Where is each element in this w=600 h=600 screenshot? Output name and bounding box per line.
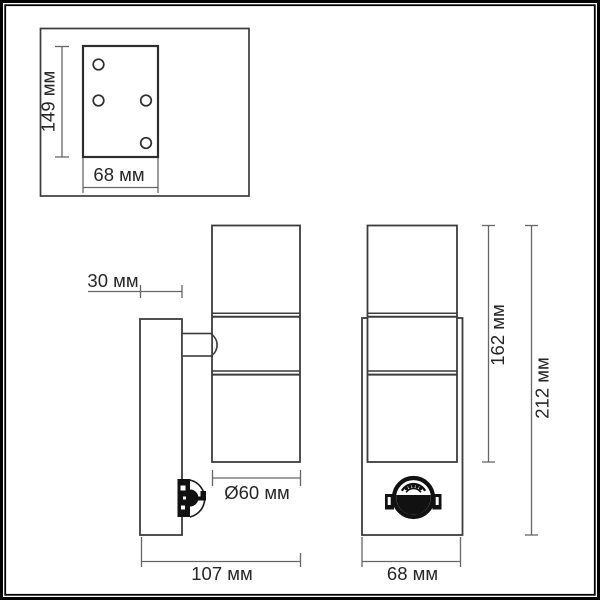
side-mounting-arm (182, 334, 212, 357)
plate-height-label: 149 мм (37, 71, 58, 132)
dim-total-depth: 107 мм (142, 537, 301, 584)
side-cylinder-body (212, 226, 300, 463)
dim-front-width: 68 мм (362, 537, 461, 584)
dim-total-height: 212 мм (525, 226, 552, 536)
dim-plate-depth: 30 мм (87, 270, 182, 298)
total-depth-label: 107 мм (191, 563, 252, 584)
mounting-hole (141, 138, 152, 149)
pir-sensor-side-icon (178, 479, 207, 517)
front-cylinder-body (368, 226, 458, 463)
plate-depth-label: 30 мм (87, 270, 138, 291)
total-height-label: 212 мм (531, 357, 552, 418)
cylinder-diameter-label: Ø60 мм (224, 482, 290, 503)
drawing-canvas: 149 мм 68 мм (0, 0, 600, 600)
side-view: 30 мм Ø60 мм 107 мм (87, 226, 300, 585)
front-width-label: 68 мм (387, 563, 438, 584)
body-height-label: 162 мм (487, 304, 508, 365)
side-wall-plate (140, 319, 182, 535)
dim-cylinder-diameter: Ø60 мм (213, 470, 301, 503)
plate-width-label: 68 мм (93, 164, 144, 185)
mounting-plate-inset: 149 мм 68 мм (37, 29, 249, 197)
mounting-hole (141, 95, 152, 106)
mounting-hole (93, 95, 104, 106)
technical-drawing: 149 мм 68 мм (0, 0, 600, 600)
dim-body-height: 162 мм (482, 226, 508, 463)
front-view: 162 мм 212 мм 68 мм (362, 226, 552, 585)
mounting-hole (93, 59, 104, 70)
